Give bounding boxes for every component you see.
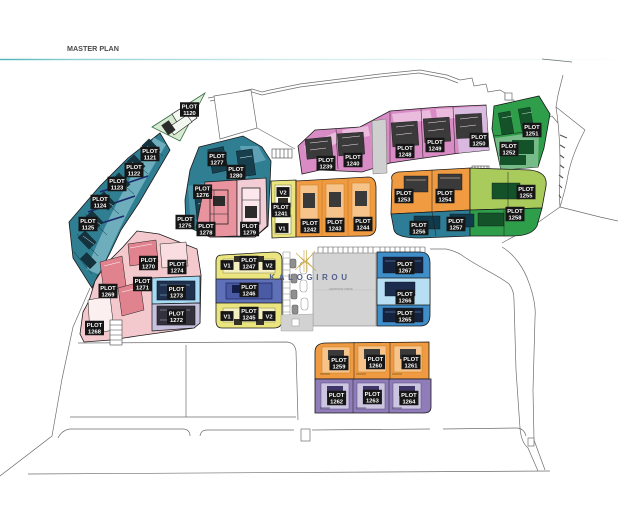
svg-text:PLOT: PLOT	[327, 220, 343, 226]
svg-text:PLOT: PLOT	[302, 221, 318, 227]
svg-text:1263: 1263	[366, 398, 380, 404]
svg-text:PLOT: PLOT	[524, 125, 540, 131]
svg-text:PLOT: PLOT	[241, 309, 257, 315]
svg-text:PLOT: PLOT	[448, 219, 464, 225]
svg-text:PLOT: PLOT	[397, 146, 413, 152]
svg-text:PLOT: PLOT	[177, 217, 193, 223]
svg-text:1241: 1241	[275, 211, 289, 217]
svg-text:V2: V2	[265, 314, 272, 320]
svg-text:1239: 1239	[320, 164, 334, 170]
svg-text:PLOT: PLOT	[397, 292, 413, 298]
svg-text:1261: 1261	[405, 363, 419, 369]
svg-text:PLOT: PLOT	[471, 135, 487, 141]
svg-text:PLOT: PLOT	[401, 393, 417, 399]
svg-text:1242: 1242	[304, 227, 317, 233]
svg-text:1121: 1121	[144, 155, 157, 161]
svg-text:1267: 1267	[399, 268, 412, 274]
svg-text:PLOT: PLOT	[397, 311, 413, 317]
svg-text:PLOT: PLOT	[403, 357, 419, 363]
svg-text:1259: 1259	[333, 364, 347, 370]
svg-text:PLOT: PLOT	[80, 219, 96, 225]
svg-text:PLOT: PLOT	[195, 187, 211, 193]
svg-text:1255: 1255	[520, 193, 534, 199]
svg-text:1256: 1256	[413, 229, 427, 235]
svg-text:PLOT: PLOT	[329, 393, 345, 399]
svg-text:1257: 1257	[450, 225, 463, 231]
svg-text:PLOT: PLOT	[331, 358, 347, 364]
svg-text:V2: V2	[279, 190, 286, 196]
svg-text:1251: 1251	[526, 131, 540, 137]
svg-text:PLOT: PLOT	[169, 287, 185, 293]
svg-text:1240: 1240	[347, 161, 360, 167]
svg-text:1243: 1243	[329, 226, 343, 232]
svg-text:1273: 1273	[170, 293, 184, 299]
svg-text:PLOT: PLOT	[501, 144, 517, 150]
svg-text:PLOT: PLOT	[368, 357, 384, 363]
svg-text:PLOT: PLOT	[87, 323, 103, 329]
svg-text:1125: 1125	[82, 225, 95, 231]
svg-text:1268: 1268	[88, 329, 102, 335]
svg-text:1265: 1265	[399, 317, 413, 323]
svg-text:PLOT: PLOT	[345, 155, 361, 161]
svg-text:1276: 1276	[196, 193, 210, 199]
svg-text:KALOGIROU: KALOGIROU	[269, 273, 350, 282]
svg-text:PLOT: PLOT	[141, 258, 157, 264]
svg-text:1247: 1247	[243, 264, 256, 270]
svg-text:1253: 1253	[398, 197, 412, 203]
svg-text:1278: 1278	[200, 230, 214, 236]
svg-text:1250: 1250	[473, 141, 486, 147]
svg-text:PLOT: PLOT	[209, 154, 225, 160]
svg-text:1266: 1266	[399, 298, 413, 304]
svg-text:1249: 1249	[429, 146, 443, 152]
svg-text:PLOT: PLOT	[507, 209, 523, 215]
svg-text:1254: 1254	[439, 197, 453, 203]
svg-text:1269: 1269	[102, 292, 116, 298]
svg-text:1244: 1244	[357, 225, 371, 231]
svg-text:PLOT: PLOT	[126, 165, 142, 171]
svg-text:PLOT: PLOT	[318, 158, 334, 164]
svg-text:PLOT: PLOT	[109, 179, 125, 185]
svg-text:MASTER PLAN: MASTER PLAN	[67, 44, 119, 53]
svg-text:PLOT: PLOT	[437, 191, 453, 197]
svg-text:PLOT: PLOT	[365, 392, 381, 398]
svg-text:1280: 1280	[230, 173, 243, 179]
svg-text:1120: 1120	[183, 111, 196, 117]
svg-text:1262: 1262	[330, 399, 343, 405]
svg-text:PLOT: PLOT	[355, 219, 371, 225]
svg-text:PLOT: PLOT	[397, 262, 413, 268]
svg-text:V2: V2	[265, 263, 272, 269]
svg-text:1275: 1275	[179, 223, 193, 229]
svg-text:1124: 1124	[94, 203, 107, 209]
svg-text:1122: 1122	[128, 171, 141, 177]
svg-text:1260: 1260	[369, 363, 382, 369]
svg-text:1258: 1258	[509, 215, 523, 221]
svg-text:V1: V1	[278, 226, 286, 232]
svg-text:PLOT: PLOT	[100, 286, 116, 292]
svg-text:PLOT: PLOT	[169, 311, 185, 317]
svg-text:PLOT: PLOT	[169, 262, 185, 268]
svg-text:1270: 1270	[142, 264, 155, 270]
svg-text:PLOT: PLOT	[242, 224, 258, 230]
svg-text:V1: V1	[223, 263, 231, 269]
svg-text:PLOT: PLOT	[518, 187, 534, 193]
svg-text:V1: V1	[223, 314, 231, 320]
svg-text:PLOT: PLOT	[182, 104, 198, 110]
svg-text:PLOT: PLOT	[198, 224, 214, 230]
svg-text:1246: 1246	[243, 291, 257, 297]
svg-text:1252: 1252	[503, 150, 516, 156]
svg-text:1123: 1123	[111, 185, 124, 191]
svg-text:1277: 1277	[211, 160, 224, 166]
svg-text:1245: 1245	[243, 315, 257, 321]
svg-text:1248: 1248	[399, 152, 413, 158]
svg-text:1271: 1271	[136, 285, 150, 291]
svg-text:PLOT: PLOT	[142, 149, 158, 155]
svg-text:1279: 1279	[243, 230, 257, 236]
svg-text:PLOT: PLOT	[396, 191, 412, 197]
svg-text:PLOT: PLOT	[92, 197, 108, 203]
svg-text:1272: 1272	[170, 318, 183, 324]
svg-text:PLOT: PLOT	[427, 140, 443, 146]
svg-text:PLOT: PLOT	[273, 205, 289, 211]
svg-text:PLOT: PLOT	[241, 258, 257, 264]
svg-text:PLOT: PLOT	[228, 167, 244, 173]
svg-text:PLOT: PLOT	[241, 285, 257, 291]
svg-text:1264: 1264	[402, 399, 416, 405]
svg-text:1274: 1274	[171, 268, 185, 274]
svg-text:PLOT: PLOT	[135, 279, 151, 285]
svg-text:PLOT: PLOT	[411, 223, 427, 229]
svg-text:ΑΘΛΗΤΙΚΟΣ ΧΩΡΟΣ: ΑΘΛΗΤΙΚΟΣ ΧΩΡΟΣ	[329, 288, 353, 291]
